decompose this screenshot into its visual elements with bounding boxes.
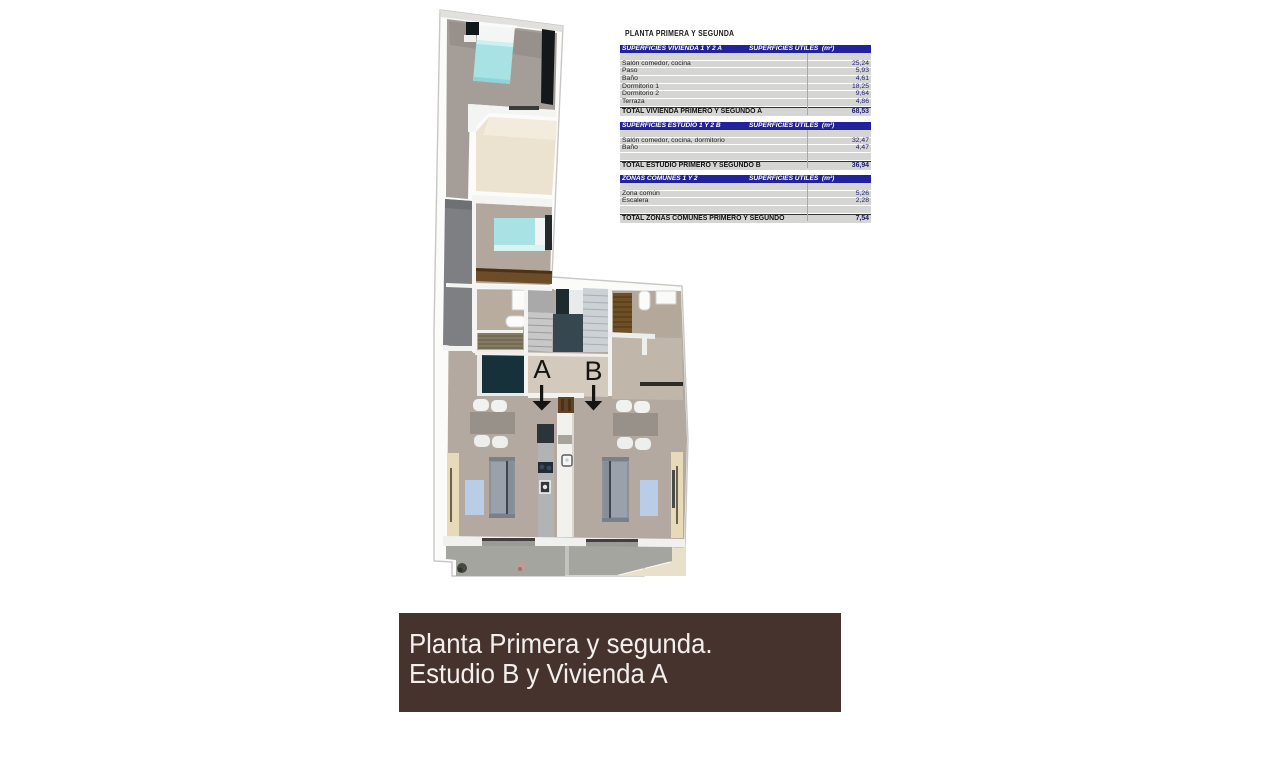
svg-text:B: B: [584, 356, 602, 386]
svg-text:A: A: [533, 354, 551, 384]
